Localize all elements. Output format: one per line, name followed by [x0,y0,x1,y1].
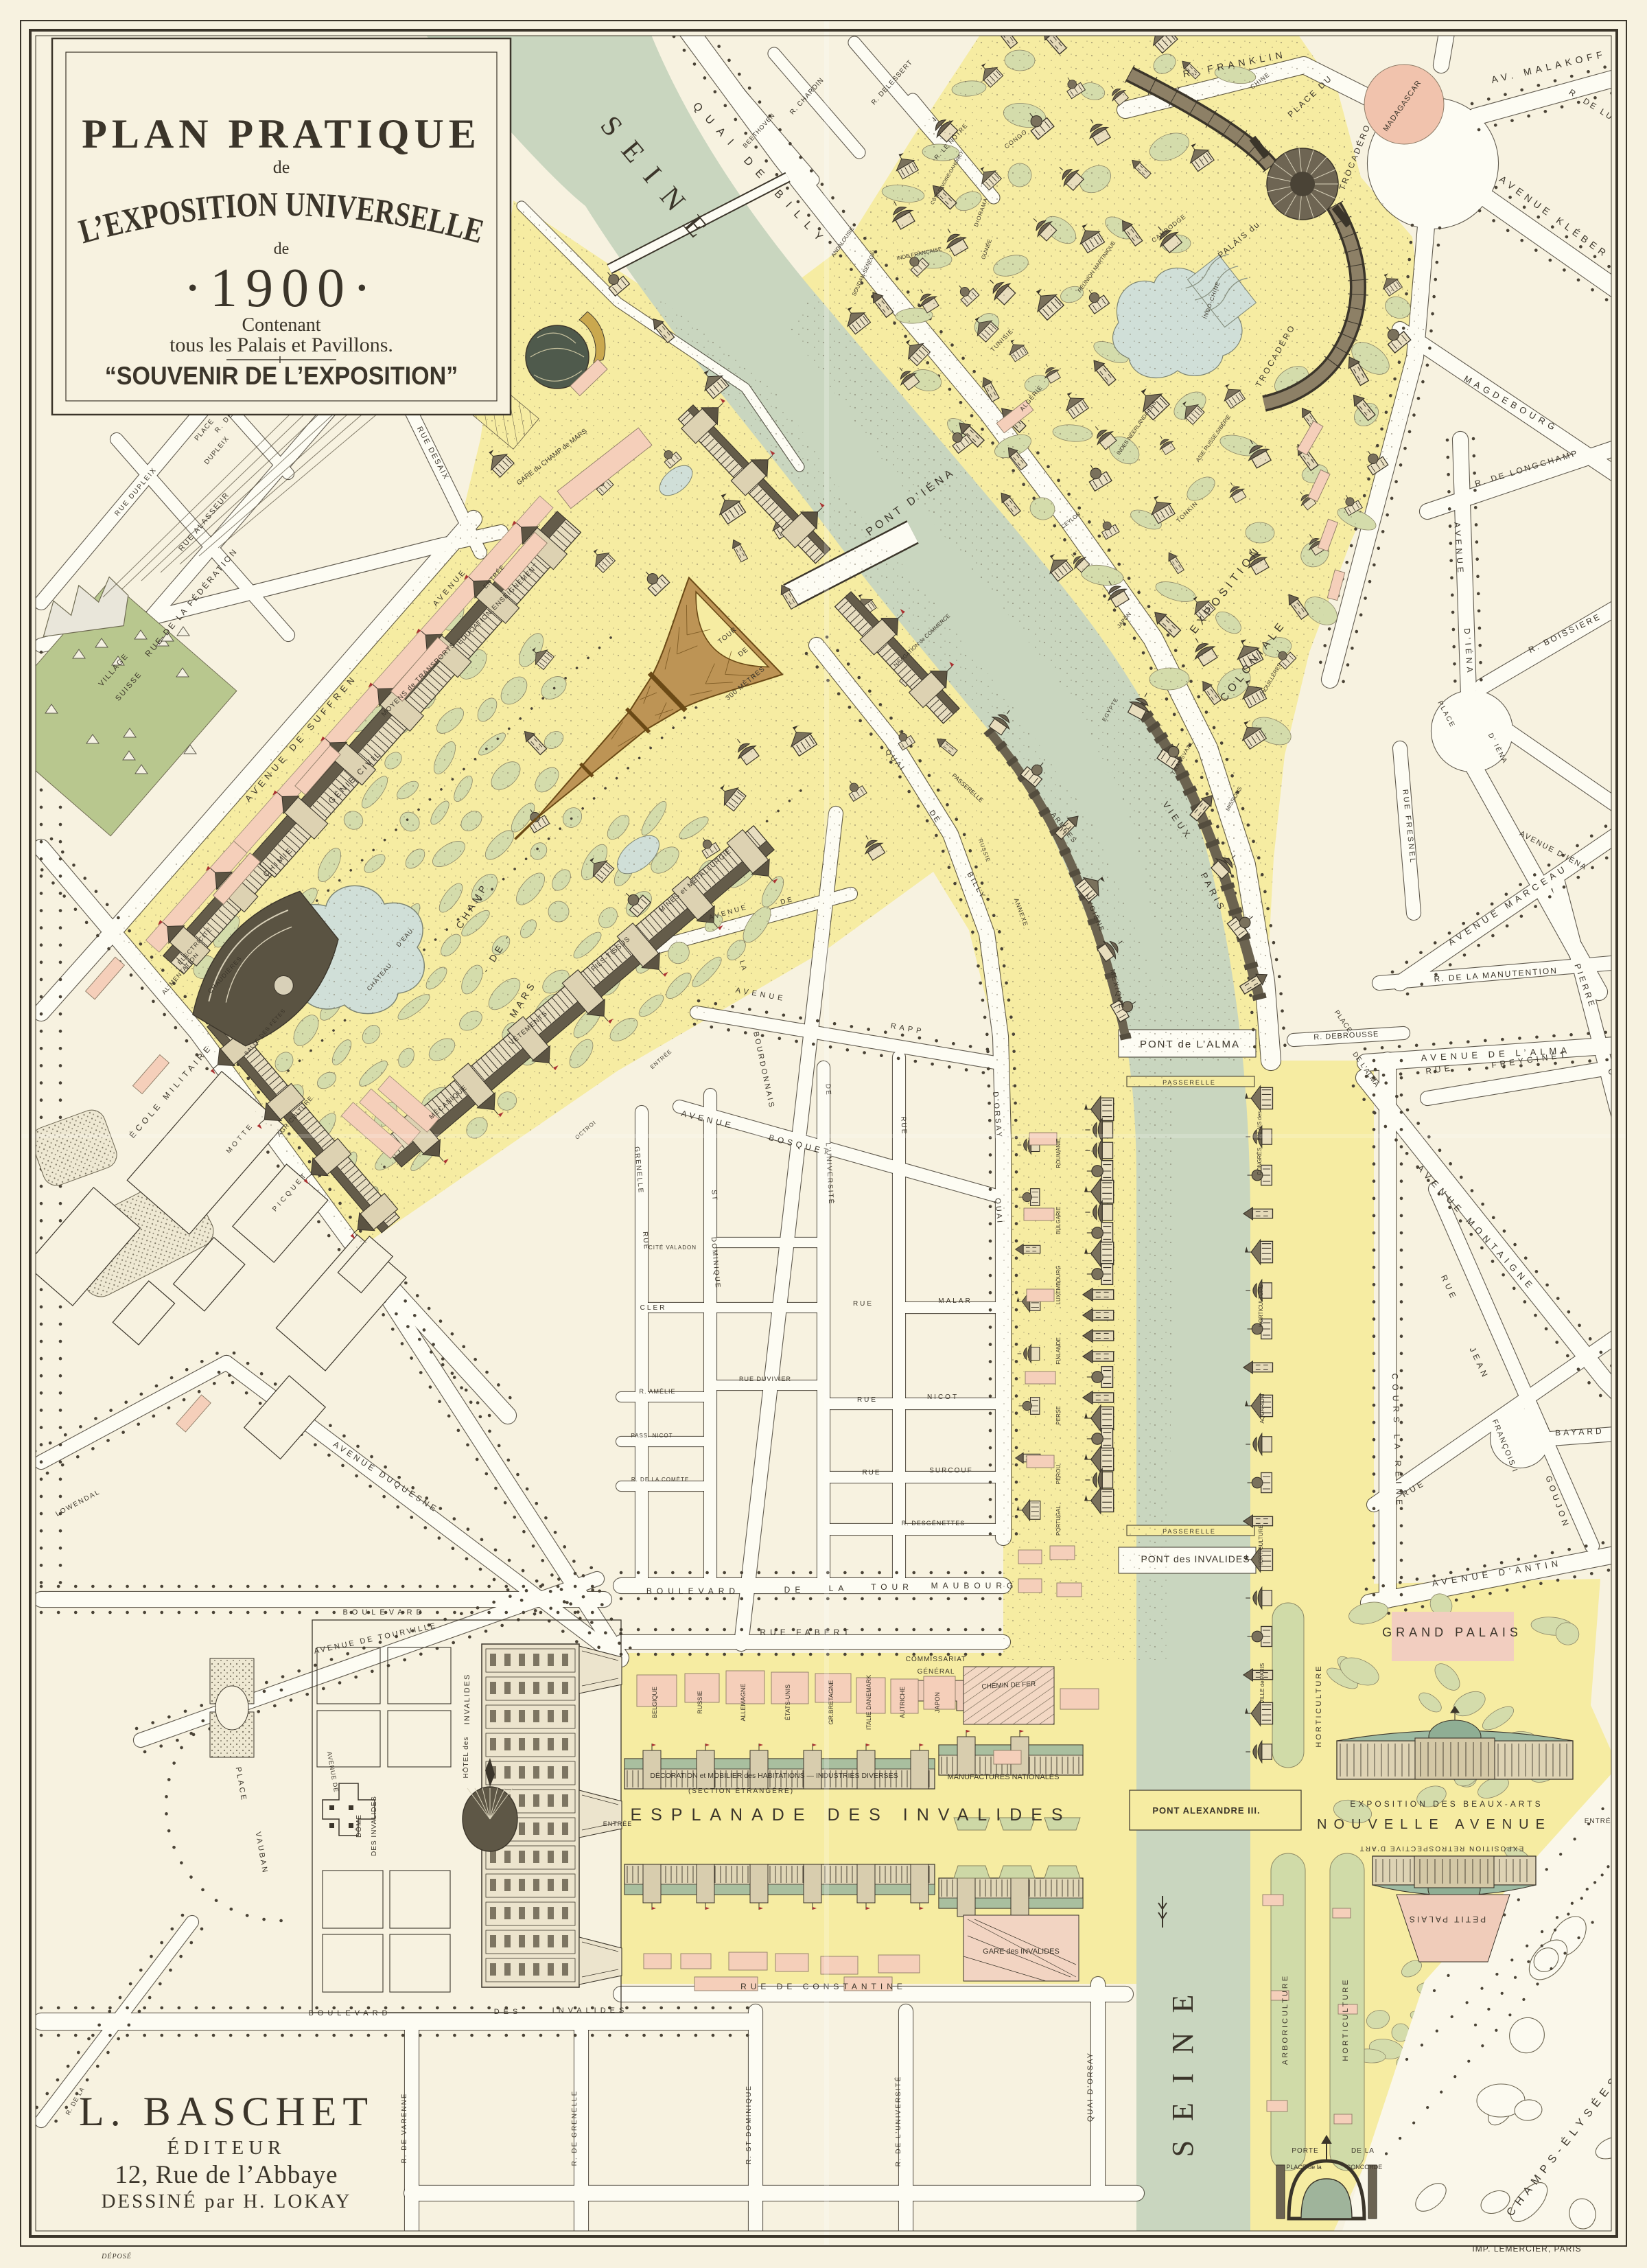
svg-text:LUXEMBOURG: LUXEMBOURG [1055,1266,1062,1305]
svg-text:BULGARIE: BULGARIE [1055,1207,1062,1234]
svg-text:RUE DE CONSTANTINE: RUE DE CONSTANTINE [740,1982,907,1991]
svg-text:SURCOUF: SURCOUF [929,1467,972,1474]
svg-text:PONT de L’ALMA: PONT de L’ALMA [1140,1039,1240,1050]
svg-text:BAYARD: BAYARD [1555,1426,1604,1437]
svg-text:ÉDITEUR: ÉDITEUR [167,2136,285,2159]
svg-text:PONT des INVALIDES: PONT des INVALIDES [1141,1553,1250,1564]
svg-text:RUE: RUE [899,1116,907,1135]
svg-text:tous les Palais et Pavillons.: tous les Palais et Pavillons. [170,334,393,356]
svg-text:(SECTION ÉTRANGÈRE): (SECTION ÉTRANGÈRE) [688,1786,794,1795]
svg-text:ALLEMAGNE: ALLEMAGNE [740,1683,747,1721]
svg-text:CONCORDE: CONCORDE [1346,2164,1383,2171]
svg-text:TOUR: TOUR [871,1582,913,1592]
svg-text:INVALIDES: INVALIDES [552,2006,629,2015]
svg-text:GARE des INVALIDES: GARE des INVALIDES [983,1947,1060,1956]
svg-text:PETIT PALAIS: PETIT PALAIS [1407,1914,1486,1924]
svg-text:AQUARIUM: AQUARIUM [1259,1393,1265,1423]
svg-text:de: de [274,240,290,258]
svg-text:ITALIE DANEMARK: ITALIE DANEMARK [865,1675,872,1730]
svg-text:GRAND PALAIS: GRAND PALAIS [1382,1625,1522,1639]
svg-text:PLAN PRATIQUE: PLAN PRATIQUE [82,111,481,157]
svg-text:PASSERELLE: PASSERELLE [1163,1079,1216,1086]
svg-text:MANUFACTURES NATIONALES: MANUFACTURES NATIONALES [948,1773,1060,1781]
svg-text:PLACE de la: PLACE de la [1286,2164,1322,2171]
svg-text:QUAI D’ORSAY: QUAI D’ORSAY [1086,2052,1095,2122]
svg-text:PÉROU: PÉROU [1055,1465,1062,1485]
svg-text:DE LA: DE LA [1351,2147,1375,2155]
svg-text:RUE DUVIVIER: RUE DUVIVIER [739,1376,791,1382]
svg-text:R. DE GRENELLE: R. DE GRENELLE [571,2090,579,2166]
svg-text:ESPLANADE DES INVALIDES: ESPLANADE DES INVALIDES [630,1805,1071,1825]
svg-text:DÉCORATION et MOBILIER des HAB: DÉCORATION et MOBILIER des HABITATIONS —… [650,1771,898,1780]
svg-text:CLER: CLER [640,1304,667,1312]
svg-text:PASSERELLE: PASSERELLE [1163,1528,1216,1535]
svg-text:de: de [273,157,290,177]
svg-text:NICOT: NICOT [927,1393,959,1401]
svg-text:COMMISSARIAT: COMMISSARIAT [906,1656,966,1663]
svg-text:PASS. NICOT: PASS. NICOT [631,1433,673,1439]
svg-text:HORTICULTURE: HORTICULTURE [1258,1525,1264,1567]
svg-text:R. DESGÉNETTES: R. DESGÉNETTES [902,1520,966,1527]
svg-text:DES: DES [494,2008,522,2016]
svg-text:“SOUVENIR DE L’EXPOSITION”: “SOUVENIR DE L’EXPOSITION” [105,362,458,391]
svg-text:PONT ALEXANDRE III.: PONT ALEXANDRE III. [1152,1805,1260,1816]
svg-text:RUE: RUE [862,1469,880,1477]
svg-text:MAUBOURG: MAUBOURG [931,1581,1018,1590]
svg-text:IMP. LEMERCIER, PARIS: IMP. LEMERCIER, PARIS [1472,2244,1581,2254]
svg-text:RUE FABERT: RUE FABERT [760,1628,852,1637]
svg-text:ENTRÉE: ENTRÉE [603,1820,633,1827]
svg-text:·1900·: ·1900· [183,258,379,319]
svg-text:HORTICULTURE: HORTICULTURE [1315,1664,1323,1747]
svg-text:PORTE: PORTE [1292,2147,1318,2155]
svg-text:R. DE L’UNIVERSITÉ: R. DE L’UNIVERSITÉ [893,2076,902,2167]
svg-text:CITÉ VALADON: CITÉ VALADON [649,1245,697,1251]
svg-text:BOULEVARD: BOULEVARD [646,1586,740,1596]
svg-text:R. DE VARENNE: R. DE VARENNE [401,2092,408,2163]
svg-text:R. DE LA COMÈTE: R. DE LA COMÈTE [631,1477,689,1483]
svg-text:ST: ST [710,1190,718,1202]
svg-text:RUSSIE: RUSSIE [697,1691,703,1714]
svg-text:SEINE: SEINE [1166,1976,1200,2157]
svg-text:BELGIQUE: BELGIQUE [651,1687,658,1718]
svg-text:JAPON: JAPON [934,1692,941,1713]
svg-text:L. BASCHET: L. BASCHET [79,2089,374,2134]
svg-text:DÉPOSÉ: DÉPOSÉ [101,2252,132,2260]
svg-text:R. ST DOMINIQUE: R. ST DOMINIQUE [745,2085,753,2164]
svg-text:GÉNÉRAL: GÉNÉRAL [918,1667,955,1676]
svg-text:BOULEVARD: BOULEVARD [342,1608,425,1617]
svg-text:PERSE: PERSE [1055,1406,1062,1424]
svg-text:EXPOSITION DES BEAUX-ARTS: EXPOSITION DES BEAUX-ARTS [1350,1799,1543,1809]
svg-text:BOULEVARD: BOULEVARD [308,2009,391,2017]
svg-text:INVALIDES: INVALIDES [463,1674,471,1725]
svg-text:MALAR: MALAR [938,1297,972,1305]
svg-text:AUTRICHE: AUTRICHE [899,1687,906,1718]
svg-text:DESSINÉ par H. LOKAY: DESSINÉ par H. LOKAY [101,2190,351,2212]
svg-text:RUE: RUE [857,1396,878,1404]
svg-text:HÔTEL des: HÔTEL des [461,1737,470,1779]
svg-text:EXPOSITION RETROSPECTIVE D’ART: EXPOSITION RETROSPECTIVE D’ART [1359,1844,1523,1852]
svg-text:ÉTATS-UNIS: ÉTATS-UNIS [784,1685,791,1720]
svg-text:HORTICULTURE: HORTICULTURE [1258,1284,1264,1327]
svg-text:RUE: RUE [853,1300,874,1308]
svg-text:DE: DE [784,1585,806,1595]
svg-text:R. AMÉLIE: R. AMÉLIE [639,1388,675,1395]
svg-text:PORTUGAL: PORTUGAL [1055,1505,1062,1536]
svg-text:CONGRÈS: CONGRÈS [1257,1148,1263,1175]
svg-text:LA: LA [829,1584,849,1593]
svg-text:DÔME: DÔME [354,1814,363,1838]
svg-text:HORTICULTURE: HORTICULTURE [1342,1978,1350,2061]
svg-text:NOUVELLE AVENUE: NOUVELLE AVENUE [1317,1817,1552,1832]
svg-text:VILLE de PARIS: VILLE de PARIS [1259,1663,1265,1704]
svg-text:ARBORICULTURE: ARBORICULTURE [1281,1974,1289,2065]
svg-text:12, Rue de l’Abbaye: 12, Rue de l’Abbaye [115,2161,338,2189]
svg-text:FINLANDE: FINLANDE [1055,1337,1062,1365]
svg-text:ROUMANIE: ROUMANIE [1055,1138,1062,1168]
svg-text:Contenant: Contenant [242,314,320,336]
svg-text:DES INVALIDES: DES INVALIDES [371,1796,378,1856]
